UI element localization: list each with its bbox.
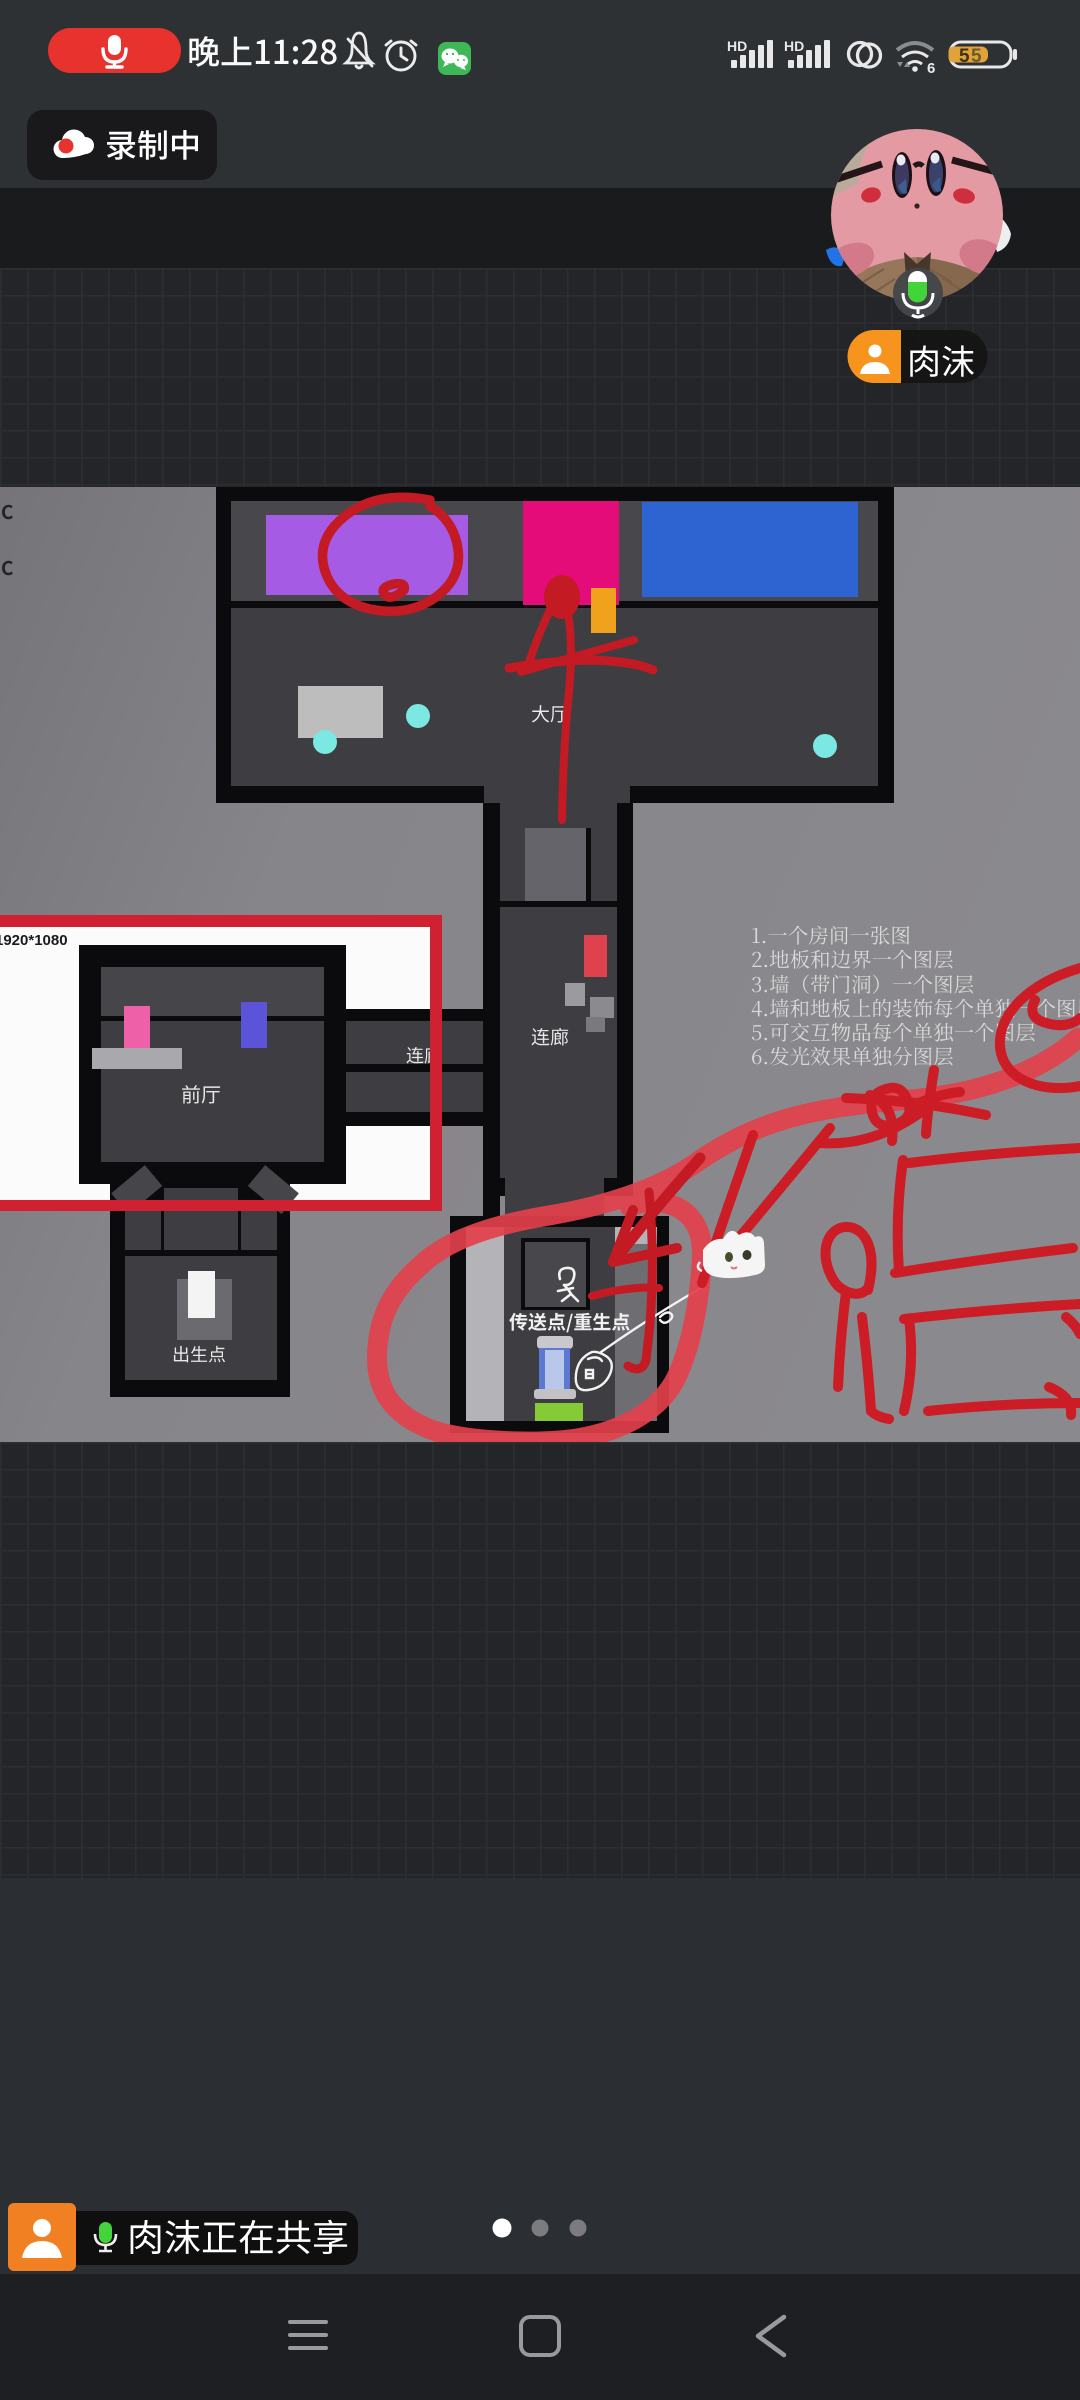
- svg-text:5: 5: [959, 46, 970, 67]
- svg-text:1920*1080: 1920*1080: [0, 932, 68, 949]
- svg-text:6: 6: [927, 60, 935, 77]
- svg-text:HD: HD: [784, 38, 804, 54]
- svg-text:HD: HD: [727, 38, 747, 54]
- svg-text:5: 5: [971, 46, 982, 67]
